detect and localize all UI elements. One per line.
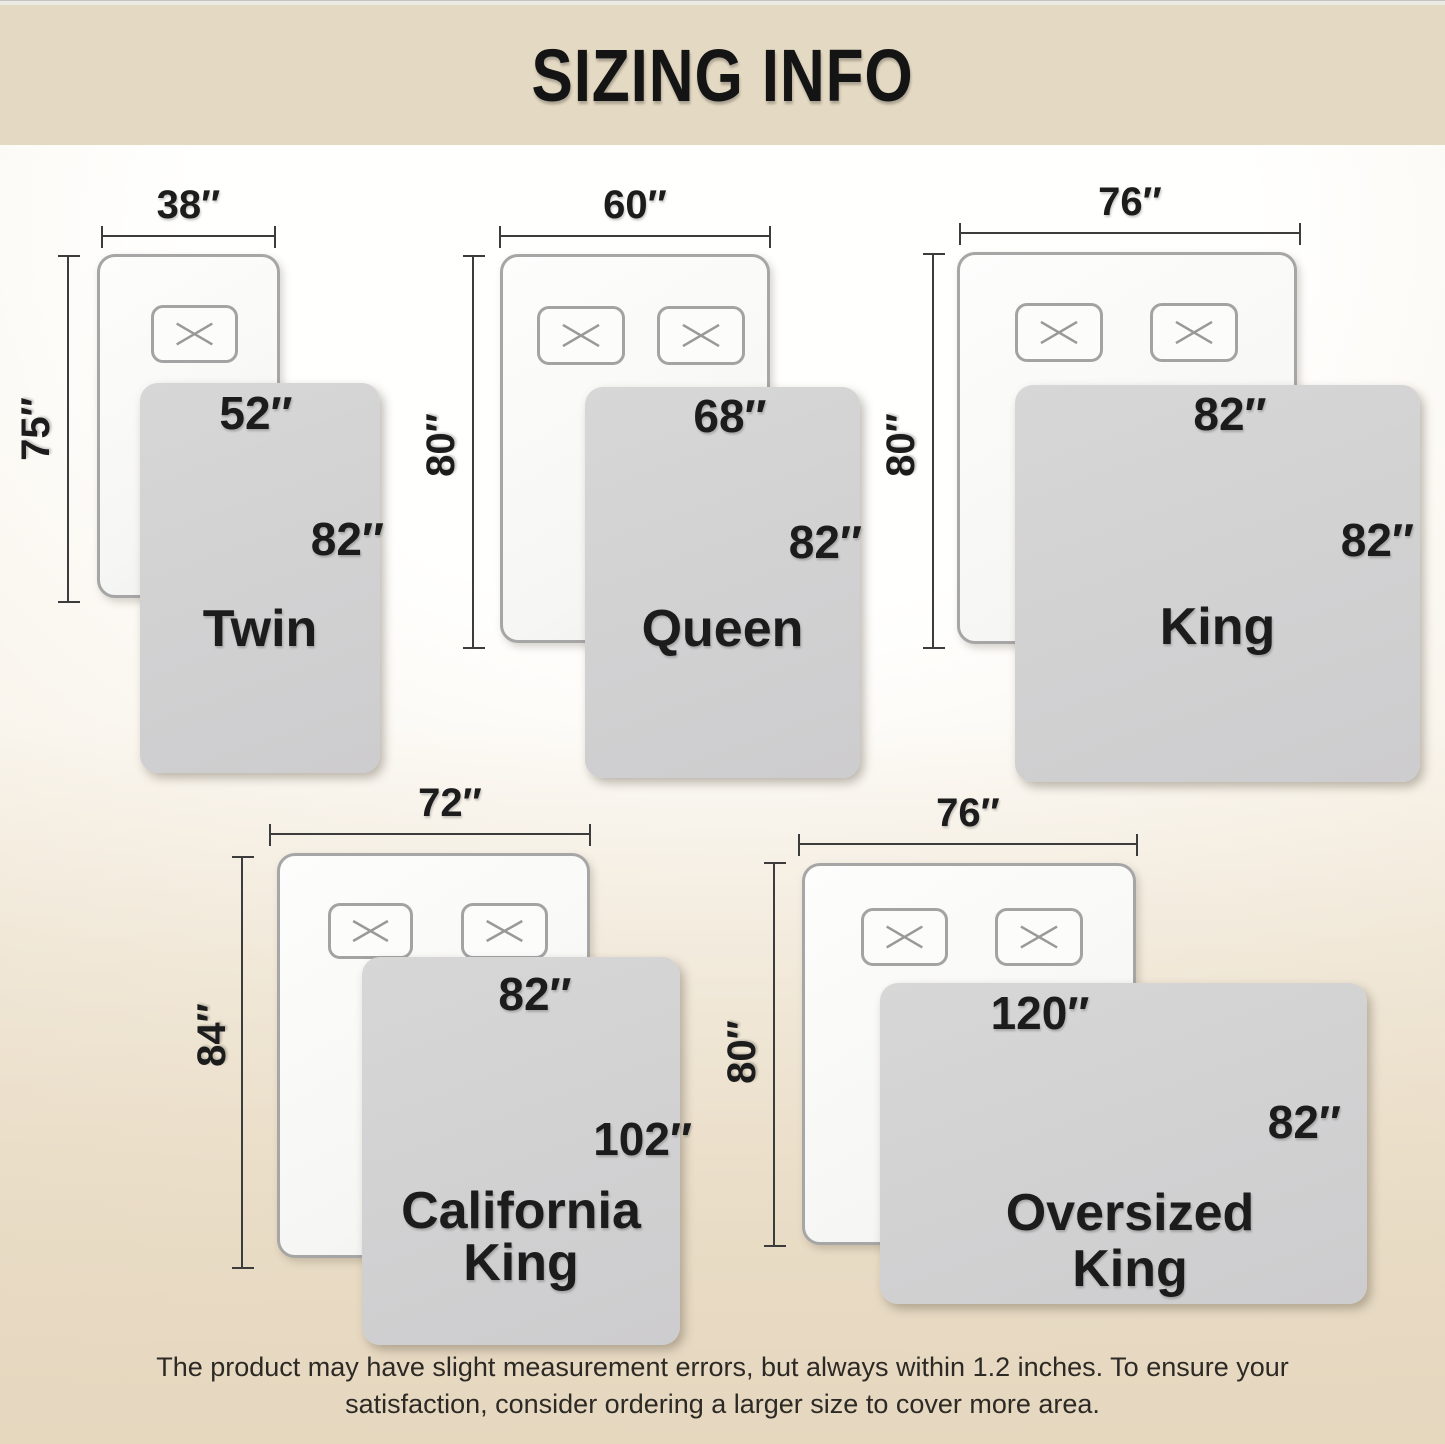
mattress: [97, 254, 280, 598]
blanket: 68″ 82″ Queen: [585, 387, 860, 778]
blanket-width-label: 82″: [390, 967, 680, 1021]
mattress: [277, 853, 590, 1258]
blanket-length-label: 82″: [1268, 1095, 1341, 1149]
pillow-icon: [995, 908, 1083, 966]
bed-diagram-queen: 60″ 80″ 68″ 82″ Queen: [0, 0, 1445, 1444]
mattress: [957, 252, 1297, 644]
length-dimension-line: [932, 254, 934, 648]
mattress: [802, 863, 1136, 1245]
width-dimension-line: 72″: [270, 833, 590, 835]
mattress: [500, 254, 770, 643]
width-dimension-line: 60″: [500, 235, 770, 237]
pillow-icon: [861, 908, 948, 966]
bed-diagram-california-king: 72″ 84″ 82″ 102″ California King: [0, 0, 1445, 1444]
disclaimer-line-1: The product may have slight measurement …: [0, 1349, 1445, 1386]
pillow-icon: [537, 306, 625, 365]
pillow-icon: [657, 306, 745, 365]
width-dimension-line: 76″: [960, 232, 1300, 234]
blanket-width-label: 68″: [600, 389, 860, 443]
pillow-icon: [151, 305, 238, 363]
blanket-length-label: 82″: [789, 515, 862, 569]
blanket-width-label: 120″: [713, 986, 1367, 1040]
blanket-length-label: 82″: [311, 512, 384, 566]
pillow-icon: [1015, 303, 1103, 362]
page-title: SIZING INFO: [531, 33, 913, 118]
blanket: 82″ 102″ California King: [362, 957, 680, 1345]
header-band: SIZING INFO: [0, 5, 1445, 145]
length-dimension-line: [241, 857, 243, 1268]
bed-diagram-king: 76″ 80″ 82″ 82″ King: [0, 0, 1445, 1444]
mattress-width-label: 76″: [1098, 180, 1162, 225]
width-dimension-line: 76″: [799, 843, 1137, 845]
bed-diagram-twin: 38″ 75″ 52″ 82″ Twin: [0, 0, 1445, 1444]
blanket: 120″ 82″ Oversized King: [880, 983, 1367, 1304]
blanket-width-label: 82″: [1040, 387, 1420, 441]
bed-name-label: Queen: [585, 603, 860, 655]
bed-name-label: King: [1015, 601, 1420, 653]
pillow-icon: [461, 903, 548, 959]
mattress-length-label: 80″: [418, 400, 464, 490]
blanket: 82″ 82″ King: [1015, 385, 1420, 782]
mattress-width-label: 60″: [603, 183, 667, 228]
mattress-length-label: 75″: [13, 384, 59, 474]
bed-name-label: Twin: [140, 603, 380, 655]
disclaimer-line-2: satisfaction, consider ordering a larger…: [0, 1386, 1445, 1423]
mattress-length-label: 80″: [719, 1007, 765, 1097]
blanket-width-label: 52″: [132, 386, 380, 440]
blanket-length-label: 102″: [593, 1112, 692, 1166]
bed-diagram-oversized-king: 76″ 80″ 120″ 82″ Oversized King: [0, 0, 1445, 1444]
mattress-width-label: 38″: [157, 183, 221, 228]
length-dimension-line: [472, 256, 474, 648]
bed-name-label: California King: [362, 1185, 680, 1289]
blanket: 52″ 82″ Twin: [140, 383, 380, 773]
pillow-icon: [1150, 303, 1238, 362]
blanket-length-label: 82″: [1341, 513, 1414, 567]
mattress-width-label: 76″: [936, 791, 1000, 836]
length-dimension-line: [773, 863, 775, 1246]
bed-name-label: Oversized King: [893, 1185, 1367, 1297]
disclaimer-text: The product may have slight measurement …: [0, 1349, 1445, 1423]
width-dimension-line: 38″: [102, 235, 275, 237]
length-dimension-line: [67, 256, 69, 602]
pillow-icon: [328, 903, 413, 959]
mattress-length-label: 80″: [878, 400, 924, 490]
mattress-length-label: 84″: [189, 990, 235, 1080]
mattress-width-label: 72″: [418, 781, 482, 826]
